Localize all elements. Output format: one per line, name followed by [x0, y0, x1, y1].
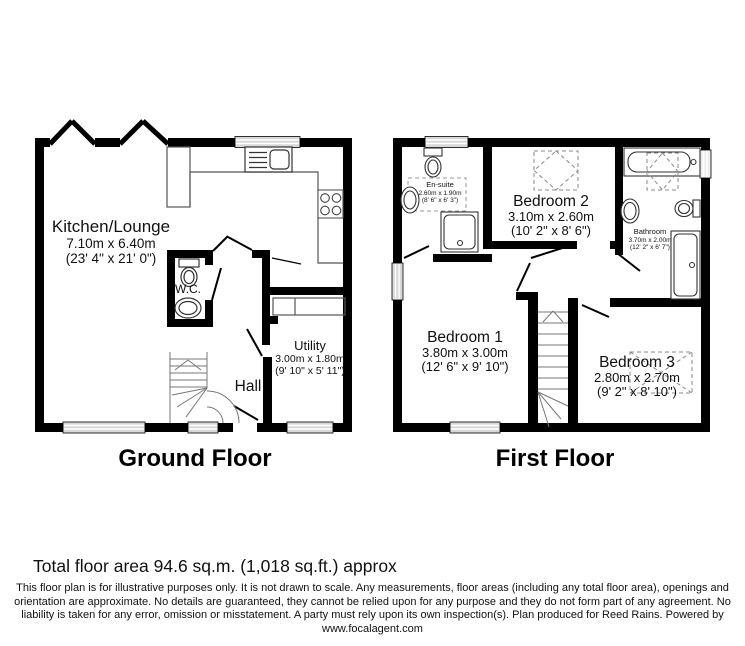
disclaimer-line: www.focalagent.com [0, 623, 745, 637]
window-icon [425, 137, 468, 148]
door-leaf-icon [212, 268, 221, 300]
room-label-bathroom: Bathroom 3.70m x 2.00m (12' 2" x 6' 7") [615, 228, 685, 252]
door-leaf-icon [228, 237, 252, 250]
window-icon [287, 422, 333, 433]
room-dims-metric: 3.10m x 2.60m [471, 210, 631, 224]
room-name: Bedroom 1 [385, 330, 545, 346]
room-dims-imperial: (8' 6" x 6' 3") [405, 197, 475, 205]
room-dims-imperial: (9' 2" x 8' 10") [557, 385, 717, 399]
disclaimer-line: orientation are approximate. No details … [0, 596, 745, 610]
room-label-kitchen-lounge: Kitchen/Lounge 7.10m x 6.40m (23' 4" x 2… [21, 217, 201, 266]
room-dims-imperial: (12' 2" x 6' 7") [615, 244, 685, 252]
room-name: Utility [255, 339, 365, 353]
floor-plan-drawing [0, 0, 745, 646]
room-name: Bedroom 2 [471, 194, 631, 210]
room-name: W.C. [163, 282, 213, 296]
window-icon [188, 422, 218, 433]
room-name: En-suite [405, 181, 475, 190]
room-label-wc: W.C. [163, 282, 213, 296]
room-dims-imperial: (10' 2" x 8' 6") [471, 224, 631, 238]
room-dims-metric: 3.00m x 1.80m [255, 353, 365, 365]
utility-worktop [273, 298, 345, 315]
window-icon [63, 422, 145, 433]
room-dims-metric: 2.80m x 2.70m [557, 371, 717, 385]
room-label-hall: Hall [218, 379, 278, 395]
window-icon [450, 422, 500, 433]
total-floor-area-text: Total floor area 94.6 sq.m. (1,018 sq.ft… [33, 556, 397, 577]
door-leaf-icon [213, 236, 228, 251]
room-dims-imperial: (12' 6" x 9' 10") [385, 360, 545, 374]
disclaimer-line: This floor plan is for illustrative purp… [0, 582, 745, 596]
window-icon [700, 150, 711, 178]
room-dims-metric: 7.10m x 6.40m [21, 236, 201, 251]
door-leaf-icon [517, 263, 530, 291]
bath-icon [624, 148, 700, 176]
first-floor-title: First Floor [435, 446, 675, 472]
room-dims-metric: 3.70m x 2.00m [615, 237, 685, 245]
kitchen-sink-icon [245, 147, 292, 172]
room-dims-imperial: (9' 10" x 5' 11") [255, 365, 365, 377]
room-dims-metric: 3.80m x 3.00m [385, 346, 545, 360]
room-name: Hall [218, 379, 278, 395]
bathroom-toilet-icon [675, 200, 700, 217]
wc-basin-icon [175, 298, 201, 318]
window-icon [235, 137, 300, 148]
window-icon [392, 263, 403, 300]
door-leaf-icon [617, 253, 640, 271]
room-dims-metric: 2.60m x 1.90m [405, 190, 475, 198]
room-label-bedroom3: Bedroom 3 2.80m x 2.70m (9' 2" x 8' 10") [557, 355, 717, 398]
disclaimer-line: liability is taken for any error, omissi… [0, 609, 745, 623]
floor-plan-page: Kitchen/Lounge 7.10m x 6.40m (23' 4" x 2… [0, 0, 745, 646]
door-leaf-icon [404, 246, 429, 258]
room-dims-imperial: (23' 4" x 21' 0") [21, 251, 201, 266]
room-name: Kitchen/Lounge [21, 217, 201, 236]
disclaimer-text: This floor plan is for illustrative purp… [0, 582, 745, 636]
room-label-utility: Utility 3.00m x 1.80m (9' 10" x 5' 11") [255, 339, 365, 377]
room-label-ensuite: En-suite 2.60m x 1.90m (8' 6" x 6' 3") [405, 181, 475, 205]
bedroom2-wardrobe-dashed [534, 151, 578, 190]
room-name: Bathroom [615, 228, 685, 237]
ground-floor-plan [35, 121, 352, 433]
door-leaf-icon [582, 305, 609, 317]
room-name: Bedroom 3 [557, 355, 717, 371]
room-label-bedroom2: Bedroom 2 3.10m x 2.60m (10' 2" x 8' 6") [471, 194, 631, 237]
door-leaf-icon [272, 258, 301, 264]
hob-icon [318, 190, 343, 218]
ground-floor-title: Ground Floor [75, 446, 315, 472]
ensuite-toilet-icon [424, 148, 442, 177]
room-label-bedroom1: Bedroom 1 3.80m x 3.00m (12' 6" x 9' 10"… [385, 330, 545, 373]
